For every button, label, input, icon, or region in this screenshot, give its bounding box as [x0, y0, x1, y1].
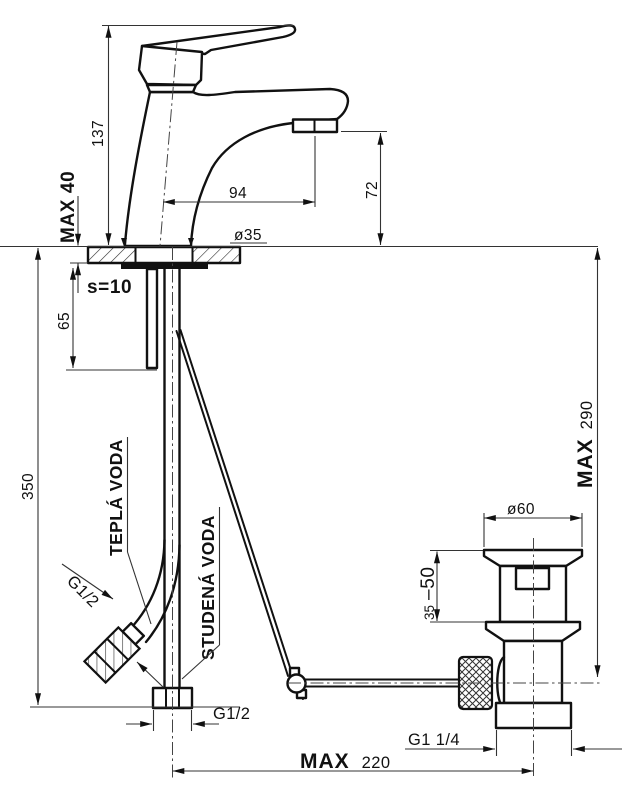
max220-label: MAX220: [300, 750, 390, 773]
drain-range-max: –50: [418, 566, 439, 600]
drain-range-label: 35–50: [418, 566, 439, 620]
dim-94-label: 94: [229, 185, 247, 202]
faucet-outline: [121, 25, 348, 246]
max290-word: MAX: [574, 438, 597, 488]
max290-label: MAX290: [574, 401, 597, 488]
max220-word: MAX: [300, 750, 350, 773]
hot-water-leader: [128, 552, 152, 624]
deck-hatch-right: [193, 247, 240, 263]
bottom-thread-label: G1/2: [213, 705, 250, 723]
mounting-stud: [147, 269, 157, 368]
hole-diameter-label: ø35: [234, 227, 262, 244]
drain-lower-body: [504, 641, 562, 703]
deck-section: [0, 247, 598, 270]
dim-max40-label: MAX 40: [58, 171, 79, 243]
max220-value: 220: [362, 754, 391, 772]
max290-value: 290: [578, 401, 596, 430]
drain-range-min: 35: [422, 605, 437, 620]
popup-rod-left: [177, 331, 289, 676]
faucet-dimension-drawing: 137 MAX 40 s=10 65 350 94 72 ø35 TEPLÁ V…: [0, 0, 624, 800]
drain-diameter-label: ø60: [507, 501, 535, 518]
drain-thread-label: G1 1/4: [408, 731, 460, 749]
drain-window: [516, 568, 549, 589]
dim-350-label: 350: [20, 473, 37, 500]
popup-drain: [459, 550, 582, 728]
deck-thickness-label: s=10: [87, 277, 132, 298]
deck-hatch-left: [88, 247, 135, 263]
dim-137-label: 137: [90, 120, 107, 147]
dim-65-label: 65: [56, 312, 73, 330]
technical-drawing-canvas: 137 MAX 40 s=10 65 350 94 72 ø35 TEPLÁ V…: [0, 0, 624, 800]
cartridge-collar: [147, 85, 196, 92]
handle-body: [139, 46, 202, 85]
hot-thread-label: G1/2: [63, 572, 102, 611]
hot-water-label: TEPLÁ VODA: [105, 439, 126, 556]
dim-72-label: 72: [364, 181, 381, 199]
dim-g12-angle-2: [137, 662, 163, 687]
hot-hose-fitting: [84, 619, 148, 683]
cold-water-label: STUDENÁ VODA: [197, 515, 218, 660]
